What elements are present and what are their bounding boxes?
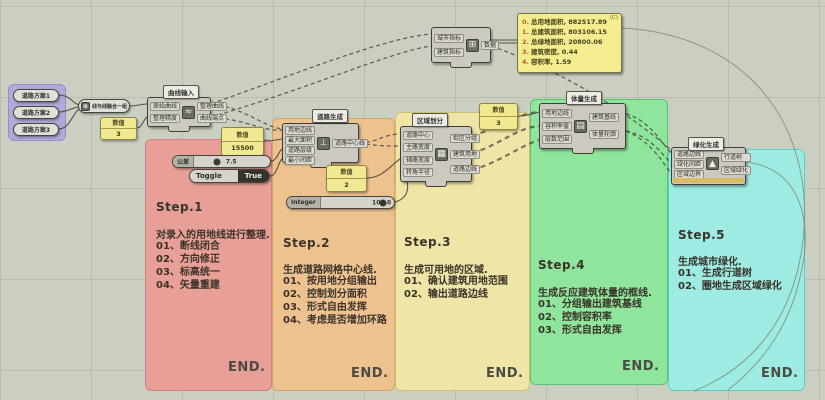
pick-value-widget[interactable]: 数值 3 [100, 117, 137, 140]
boolean-toggle[interactable]: Toggle True [189, 169, 270, 183]
node-tab [450, 62, 472, 68]
step4-item: 03、形式自由发挥 [538, 325, 622, 338]
far-value-widget[interactable]: 数值 3 [479, 103, 518, 130]
step4-end-label: END. [622, 359, 660, 374]
input-port[interactable]: 主路宽度 [403, 143, 433, 152]
input-port[interactable]: 用地边线 [542, 109, 572, 118]
step3-title: Step.3 [404, 235, 451, 249]
input-port[interactable]: 道路中心 [403, 131, 433, 140]
input-port[interactable]: 整理精度 [150, 114, 180, 123]
input-port[interactable]: 容积率值 [542, 122, 572, 131]
step3-item: 01、确认建筑用地范围 [404, 276, 508, 289]
road-network-icon: ⊥ [317, 137, 330, 150]
step4-item: 02、控制容积率 [538, 312, 612, 325]
stats-line: 4. 容积率, 1.59 [522, 57, 617, 67]
tolerance-slider[interactable]: 公差 7.5 [172, 155, 271, 168]
source-capsule-plan2[interactable]: 道路方案2 [13, 106, 59, 119]
slider-value: 7.5 [226, 158, 237, 165]
output-port[interactable]: 街区分组 [450, 134, 480, 143]
source-label: 道路方案2 [22, 108, 50, 117]
greening-node[interactable]: 道路边线 绿化间距 区域边界 ▲ 行道树 区域绿化 [671, 147, 746, 185]
step2-item: 04、考虑是否增加环路 [283, 315, 387, 328]
merge-icon: ⊕ [81, 102, 90, 111]
stats-node[interactable]: 城市指标 建筑指标 ⊞ 数据 [431, 27, 491, 63]
stats-line: 2. 总绿地面积, 20800.06 [522, 37, 617, 47]
road-network-node[interactable]: 用地边线 最大面积 道路层级 最小间距 ⊥ 道路中心线 [282, 123, 359, 163]
input-port[interactable]: 建筑指标 [434, 48, 464, 57]
step4-title: Step.4 [538, 258, 585, 272]
step3-end-label: END. [486, 366, 524, 381]
input-port[interactable]: 用地边线 [285, 126, 315, 135]
slider-knob[interactable] [213, 158, 220, 165]
step5-item: 02、圈地生成区域绿化 [678, 281, 782, 294]
toggle-name: Toggle [190, 170, 238, 182]
step5-desc: 生成城市绿化. [678, 253, 742, 268]
source-label: 道路方案1 [22, 91, 50, 100]
output-port[interactable]: 曲线端点 [197, 114, 227, 123]
input-port[interactable]: 最小间距 [285, 156, 315, 165]
slider-track[interactable]: 100.0 [321, 197, 394, 208]
tag-massing: 体量生成 [566, 91, 602, 105]
curve-cleanup-icon: ≈ [182, 106, 195, 119]
merge-curves-node[interactable]: ⊕ 线与线融合一组 [78, 99, 130, 113]
input-port[interactable]: 最大面积 [285, 136, 315, 145]
step1-title: Step.1 [156, 200, 203, 214]
count-label: 数值 [327, 166, 366, 179]
stats-line: 3. 建筑密度, 0.44 [522, 47, 617, 57]
output-port[interactable]: 建筑用地 [450, 150, 480, 159]
stats-line: 1. 总建筑面积, 803106.15 [522, 27, 617, 37]
warning-strip [673, 178, 744, 183]
node-tab [572, 148, 594, 154]
output-port[interactable]: 建筑基线 [589, 113, 619, 122]
output-port[interactable]: 区域绿化 [721, 166, 751, 175]
step1-item: 04、矢量重建 [156, 280, 220, 293]
step2-desc: 生成道路网格中心线. [283, 261, 377, 276]
step1-item: 01、断线闭合 [156, 241, 220, 254]
output-port[interactable]: 体量轮廓 [589, 130, 619, 139]
step4-item: 01、分组输出建筑基线 [538, 299, 642, 312]
toggle-value[interactable]: True [238, 170, 269, 182]
tag-region-split: 区域划分 [412, 113, 448, 127]
stats-panel-corner: (C) [610, 15, 618, 21]
massing-icon: ▤ [574, 120, 587, 133]
far-value: 3 [480, 117, 517, 130]
count-value: 2 [327, 179, 366, 192]
slider-name: Integer [287, 197, 321, 208]
merge-label: 线与线融合一组 [92, 103, 127, 110]
pick-label: 数值 [101, 118, 136, 129]
step1-item: 03、标高统一 [156, 267, 220, 280]
count-value-widget[interactable]: 数值 2 [326, 165, 367, 192]
spacing-value: 15500 [222, 142, 263, 156]
region-split-icon: ▦ [435, 148, 448, 161]
slider-track[interactable]: 7.5 [194, 156, 270, 167]
tree-icon: ▲ [706, 157, 719, 170]
step2-item: 02、控制划分面积 [283, 289, 367, 302]
input-port[interactable]: 辅路宽度 [403, 156, 433, 165]
input-port[interactable]: 道路层级 [285, 146, 315, 155]
stats-line: 0. 总用地面积, 882517.89 [522, 17, 617, 27]
slider-name: 公差 [173, 156, 194, 167]
tag-curve-input: 曲线输入 [163, 85, 199, 99]
pick-value: 3 [101, 129, 136, 140]
grasshopper-canvas: 道路方案1 道路方案2 道路方案3 ⊕ 线与线融合一组 数值 3 曲线输入 原始… [0, 0, 825, 400]
source-label: 道路方案3 [22, 125, 50, 134]
tag-road-generation: 道路生成 [312, 109, 348, 123]
step1-end-label: END. [228, 360, 266, 375]
input-port[interactable]: 原始曲线 [150, 102, 180, 111]
source-capsule-plan1[interactable]: 道路方案1 [13, 89, 59, 102]
node-tab [425, 181, 447, 187]
region-split-node[interactable]: 道路中心 主路宽度 辅路宽度 转角半径 ▦ 街区分组 建筑用地 道路边线 [400, 126, 472, 182]
output-port[interactable]: 整理曲线 [197, 102, 227, 111]
input-port[interactable]: 城市指标 [434, 34, 464, 43]
massing-node[interactable]: 用地边线 容积率值 层数范围 ▤ 建筑基线 体量轮廓 [539, 103, 626, 149]
input-port[interactable]: 层数范围 [542, 135, 572, 144]
output-port[interactable]: 道路边线 [450, 165, 480, 174]
step4-desc: 生成反应建筑体量的框线. [538, 284, 652, 299]
step5-item: 01、生成行道树 [678, 268, 752, 281]
output-port[interactable]: 数据 [481, 41, 499, 50]
step2-title: Step.2 [283, 236, 330, 250]
tag-greening: 绿化生成 [688, 137, 724, 151]
node-tab [168, 126, 190, 132]
source-capsule-plan3[interactable]: 道路方案3 [13, 123, 59, 136]
step2-item: 03、形式自由发挥 [283, 302, 367, 315]
stats-icon: ⊞ [466, 39, 479, 52]
step3-desc: 生成可用地的区域. [404, 261, 488, 276]
spacing-value-widget[interactable]: 数值 15500 [221, 127, 264, 156]
input-port[interactable]: 绿化间距 [674, 160, 704, 169]
curve-cleanup-node[interactable]: 原始曲线 整理精度 ≈ 整理曲线 曲线端点 [147, 97, 211, 127]
output-port[interactable]: 行道树 [721, 153, 751, 162]
output-port[interactable]: 道路中心线 [332, 139, 368, 148]
step2-end-label: END. [351, 366, 389, 381]
step1-item: 02、方向修正 [156, 254, 220, 267]
integer-slider[interactable]: Integer 100.0 [286, 196, 395, 209]
step1-desc: 对录入的用地线进行整理. [156, 226, 270, 241]
slider-value: 100.0 [372, 199, 391, 206]
step5-end-label: END. [761, 366, 799, 381]
step5-title: Step.5 [678, 228, 725, 242]
far-label: 数值 [480, 104, 517, 117]
stats-panel[interactable]: (C) 0. 总用地面积, 882517.89 1. 总建筑面积, 803106… [517, 13, 622, 73]
input-port[interactable]: 转角半径 [403, 168, 433, 177]
spacing-label: 数值 [222, 128, 263, 142]
step2-item: 01、按用地分组输出 [283, 276, 377, 289]
step3-item: 02、输出道路边线 [404, 289, 488, 302]
